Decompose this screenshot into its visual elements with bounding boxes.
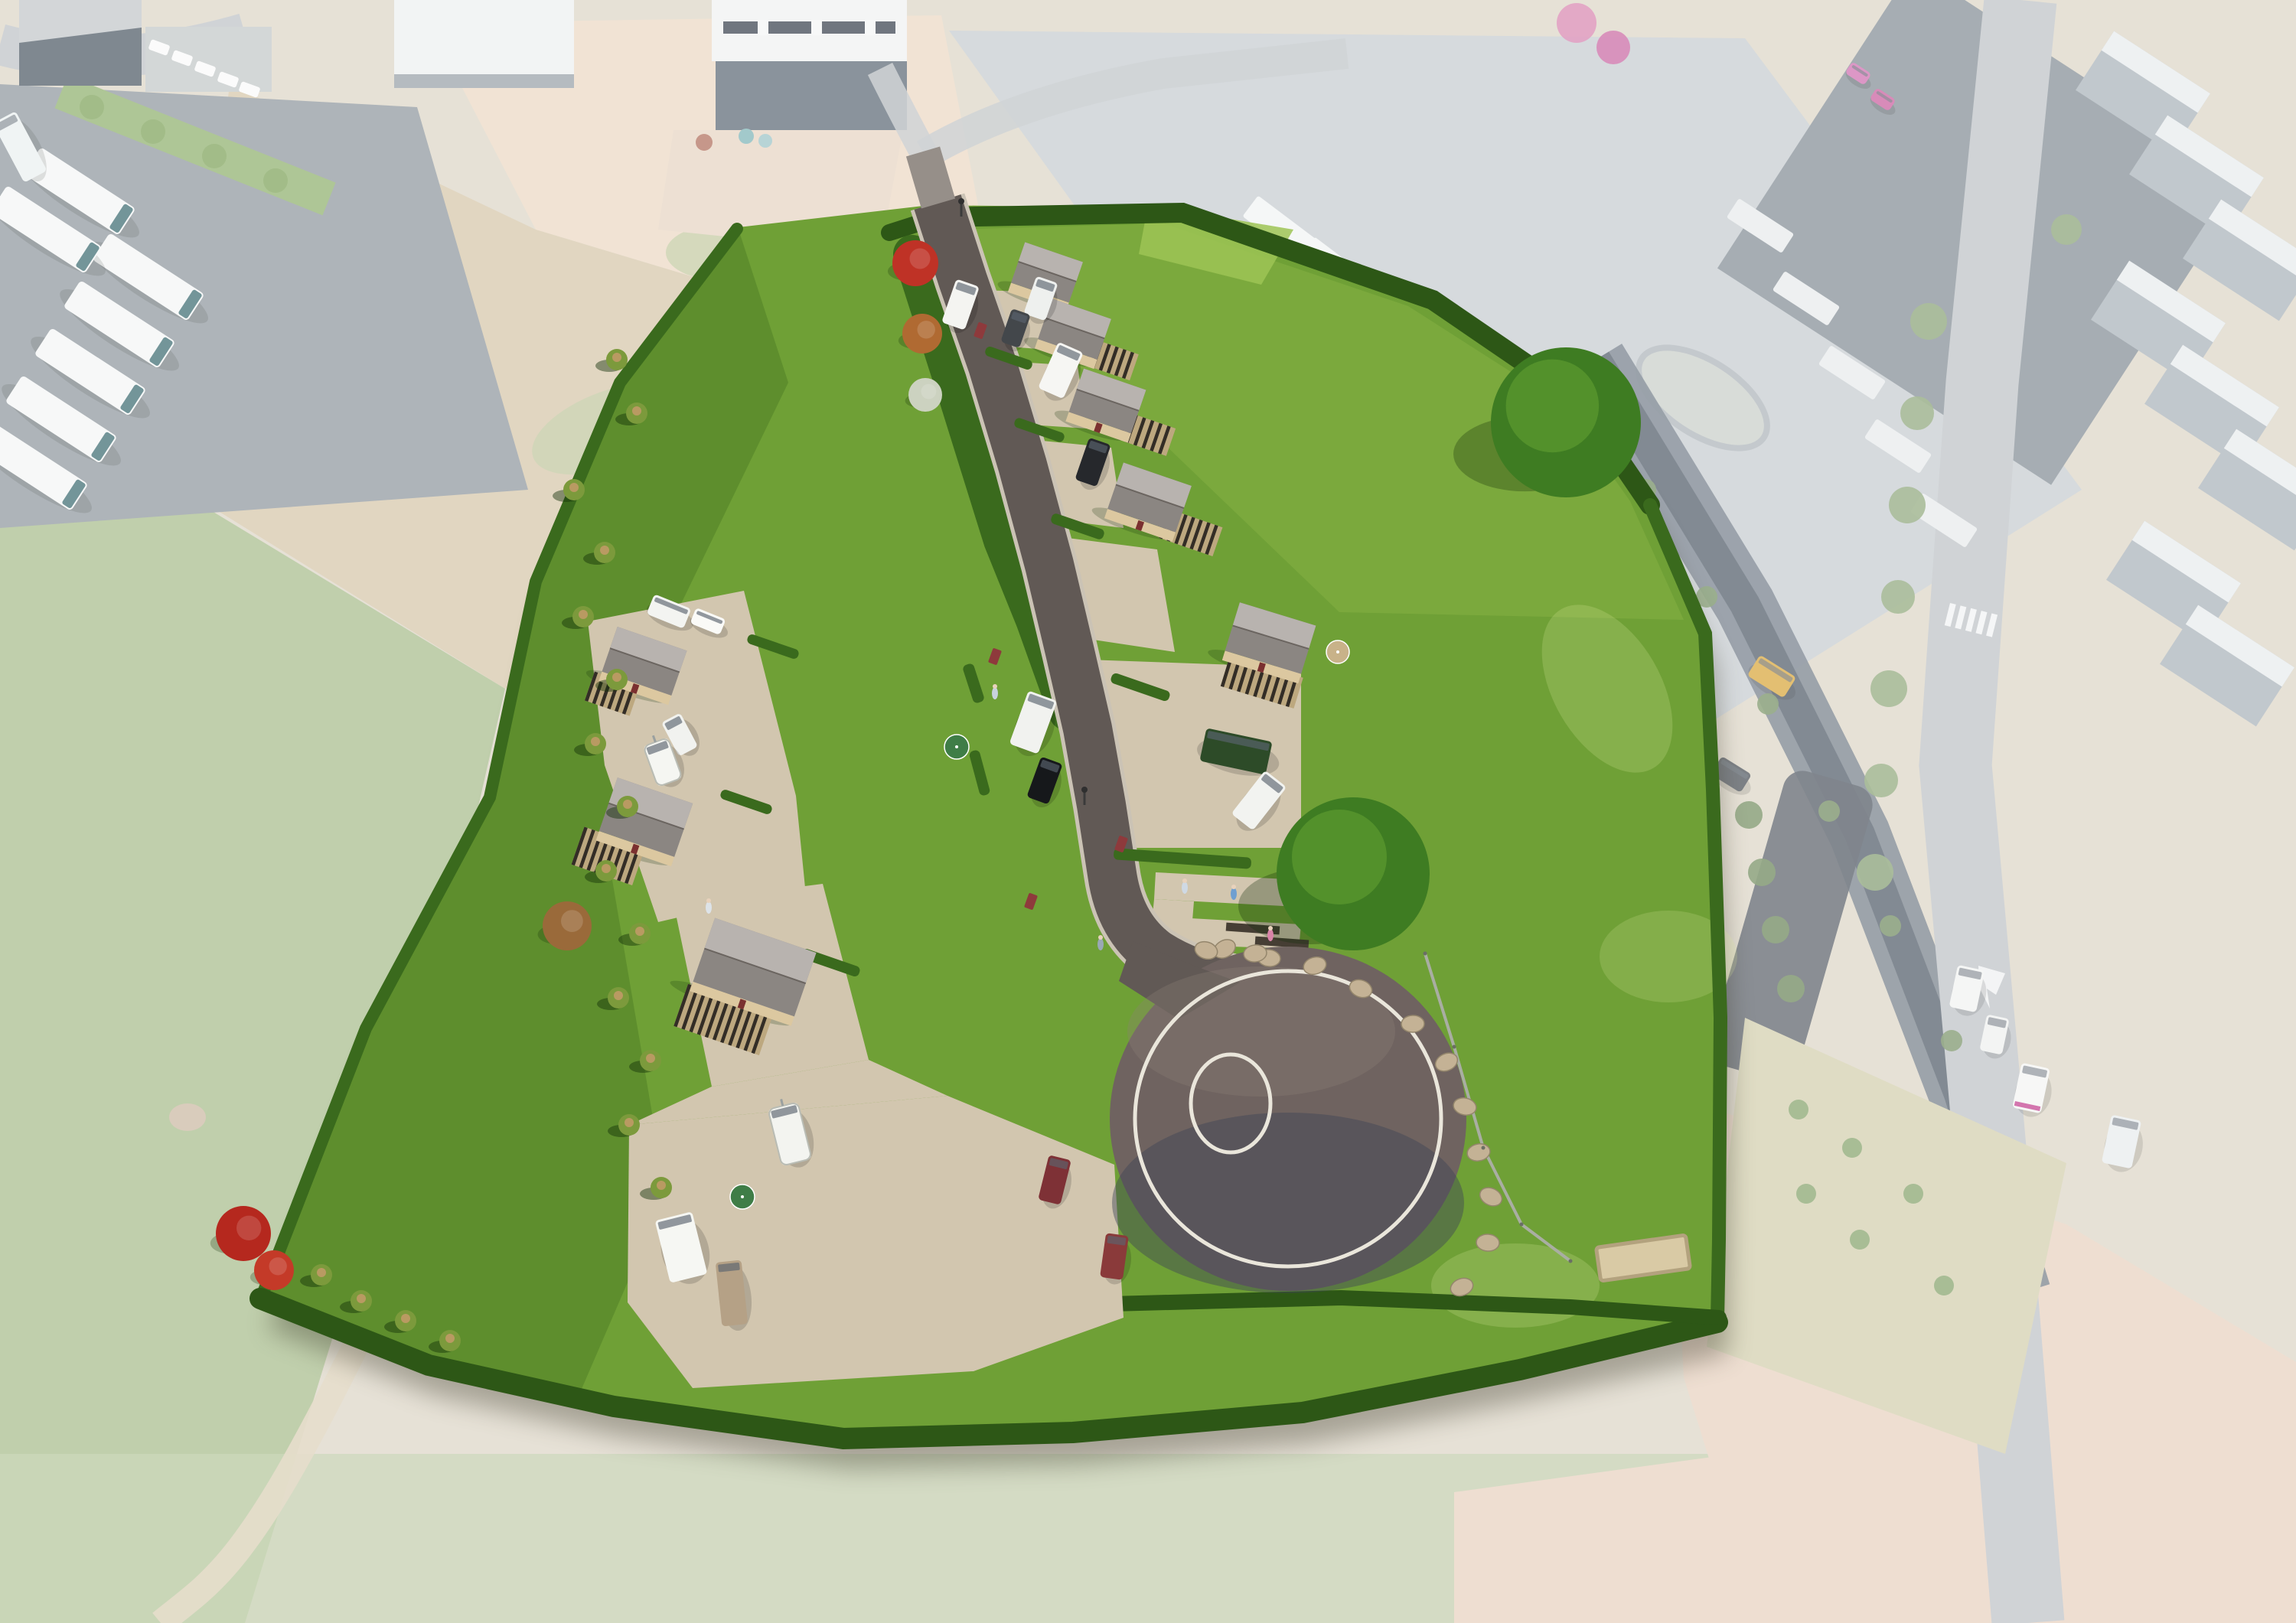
fence-post <box>1569 1260 1573 1263</box>
person <box>1182 878 1188 894</box>
aerial-render-composite <box>0 0 2296 1623</box>
parasol <box>944 735 969 759</box>
person <box>1267 926 1274 941</box>
scene-canvas <box>0 0 2296 1623</box>
fence-post <box>1453 1045 1456 1049</box>
boulder <box>1476 1234 1499 1252</box>
parasol <box>1326 640 1349 663</box>
boulder <box>1401 1015 1425 1032</box>
parasol <box>730 1185 755 1209</box>
fence-post <box>1520 1223 1524 1227</box>
person <box>992 684 998 699</box>
entrance-stub <box>923 152 938 204</box>
person <box>1097 935 1104 950</box>
person <box>1231 885 1237 900</box>
fence-post <box>1424 952 1427 956</box>
fence-post <box>1482 1146 1486 1150</box>
person <box>706 898 712 914</box>
